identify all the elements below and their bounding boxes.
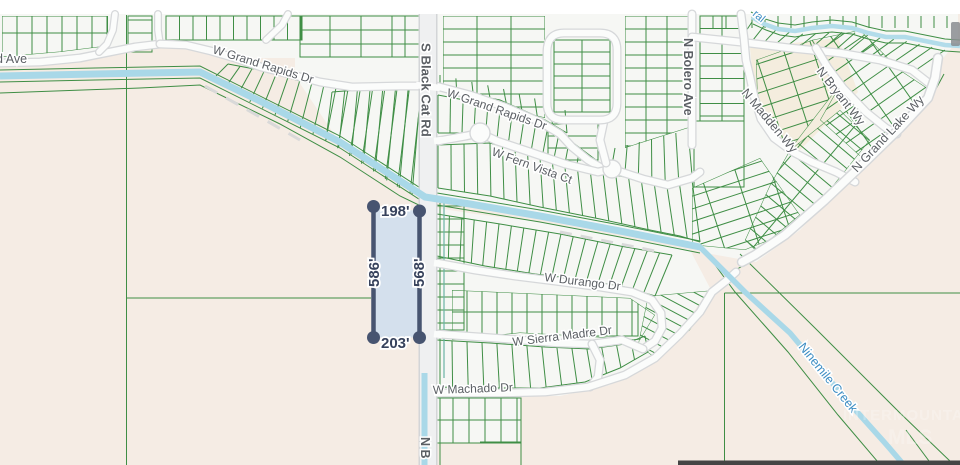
svg-text:203': 203' [381,335,410,352]
svg-text:d Ave: d Ave [0,52,27,66]
svg-text:MLS: MLS [888,426,932,449]
svg-text:N B: N B [418,437,432,459]
svg-text:S Black Cat Rd: S Black Cat Rd [419,43,434,137]
svg-text:586': 586' [366,258,383,287]
svg-text:N Bolero Ave: N Bolero Ave [681,38,695,116]
svg-text:INTERMOUNTAIN: INTERMOUNTAIN [843,407,960,424]
svg-text:198': 198' [381,203,410,220]
svg-text:568': 568' [411,258,428,287]
svg-text:W Machado Dr: W Machado Dr [433,380,513,397]
